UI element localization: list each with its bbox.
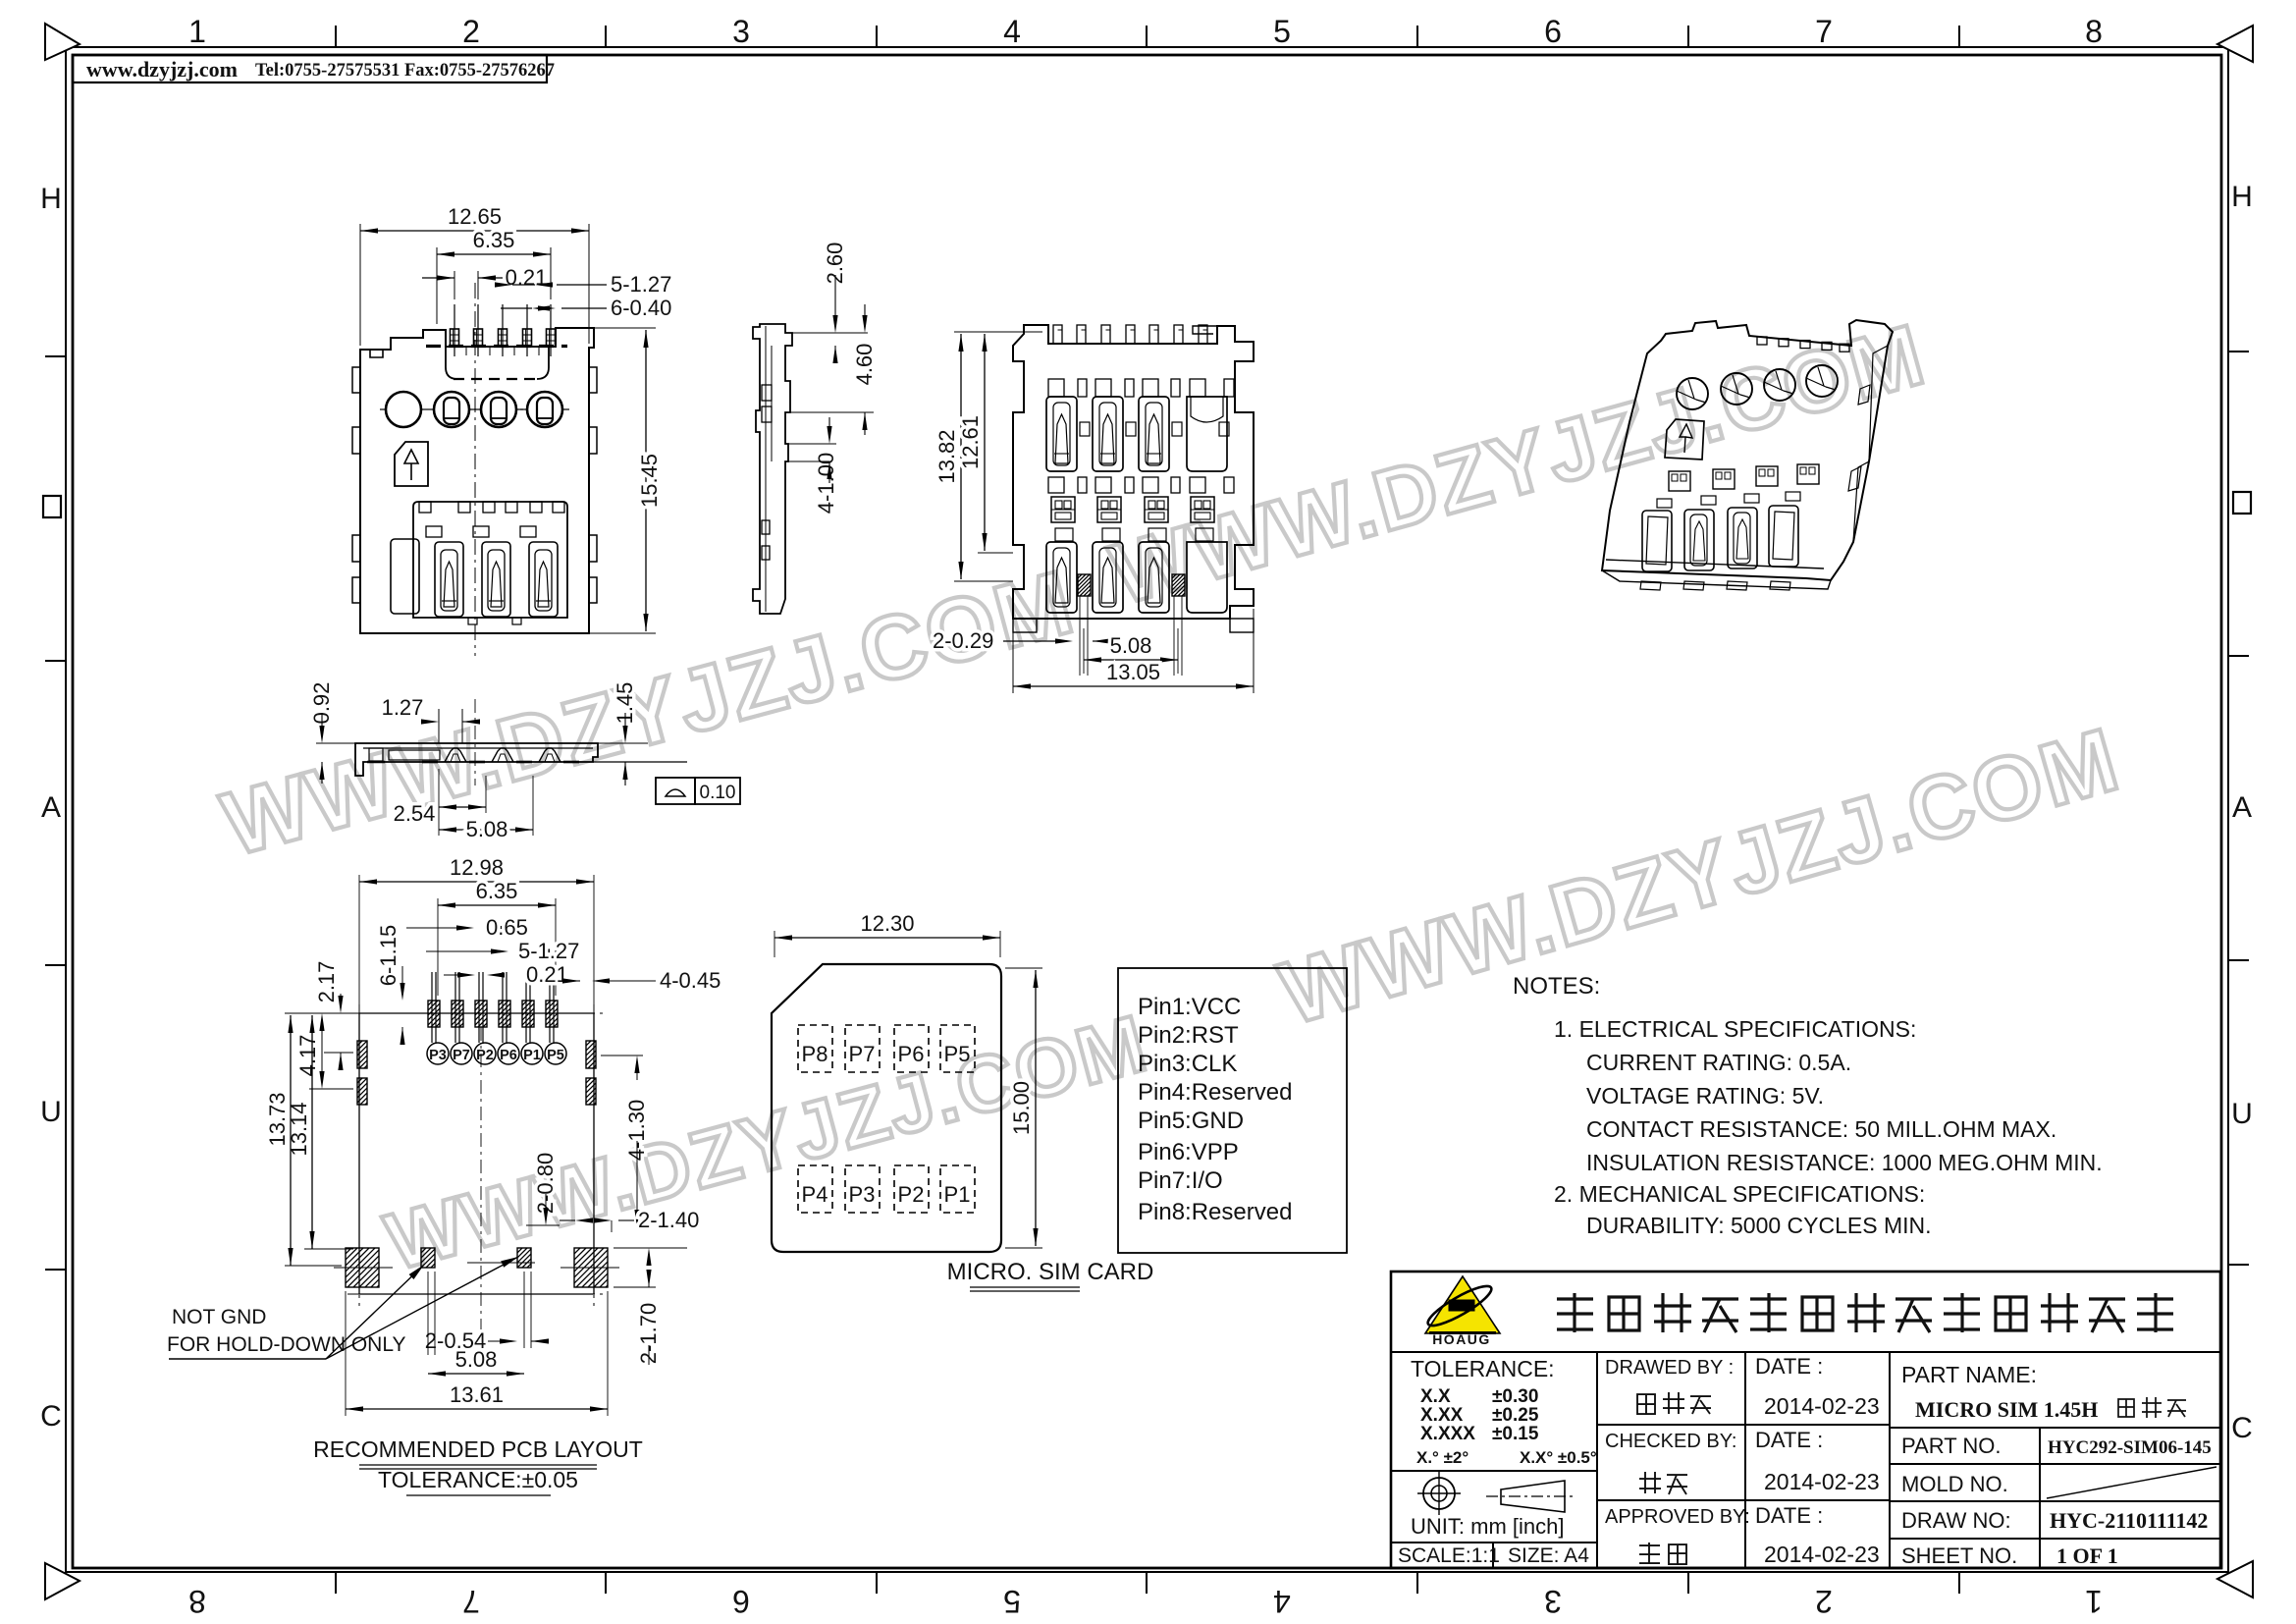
svg-text:2014-02-23: 2014-02-23 (1764, 1393, 1880, 1419)
svg-text:12.30: 12.30 (860, 911, 914, 936)
svg-text:INSULATION RESISTANCE: 1000: INSULATION RESISTANCE: 1000 MEG.OHM MIN. (1586, 1150, 2103, 1175)
svg-text:2. MECHANICAL SPECIFICATIONS: 2. MECHANICAL SPECIFICATIONS: (1554, 1181, 1925, 1207)
svg-text:3: 3 (1544, 1584, 1562, 1619)
svg-text:6.35: 6.35 (473, 228, 515, 252)
svg-text:4.60: 4.60 (852, 344, 877, 386)
svg-text:P1: P1 (944, 1182, 971, 1207)
svg-text:0.65: 0.65 (486, 915, 528, 940)
svg-text:4.17: 4.17 (295, 1035, 320, 1077)
svg-text:Pin7:I/O: Pin7:I/O (1138, 1167, 1223, 1194)
svg-text:X.X° ±0.5°: X.X° ±0.5° (1520, 1448, 1597, 1467)
svg-text:15.00: 15.00 (1009, 1081, 1034, 1135)
svg-text:Pin2:RST: Pin2:RST (1138, 1022, 1239, 1049)
svg-text:Tel:0755-27575531 Fax:0755-27: Tel:0755-27575531 Fax:0755-27576267 (255, 61, 555, 81)
svg-text:H: H (40, 183, 62, 215)
svg-text:4: 4 (1273, 1584, 1291, 1619)
svg-text:Pin5:GND: Pin5:GND (1138, 1108, 1244, 1134)
svg-text:U: U (40, 1096, 62, 1128)
svg-text:HYC-2110111142: HYC-2110111142 (2050, 1508, 2208, 1533)
svg-text:P3: P3 (429, 1048, 447, 1063)
svg-text:2.17: 2.17 (314, 961, 339, 1003)
svg-text:PART NAME:: PART NAME: (1901, 1362, 2037, 1387)
svg-text:Pin4:Reserved: Pin4:Reserved (1138, 1079, 1292, 1106)
svg-text:P1: P1 (523, 1048, 541, 1063)
svg-text:6: 6 (732, 1584, 750, 1619)
svg-text:TOLERANCE:±0.05: TOLERANCE:±0.05 (378, 1467, 578, 1492)
svg-text:CURRENT RATING: 0.5A.: CURRENT RATING: 0.5A. (1586, 1050, 1851, 1075)
svg-text:1: 1 (188, 14, 206, 49)
svg-text:12.61: 12.61 (958, 415, 983, 469)
svg-text:0.21: 0.21 (526, 962, 568, 987)
svg-text:13.82: 13.82 (934, 429, 959, 483)
svg-text:DURABILITY: 5000 CYCLES MIN: DURABILITY: 5000 CYCLES MIN. (1586, 1213, 1932, 1238)
svg-text:P8: P8 (802, 1042, 828, 1066)
svg-text:P5: P5 (547, 1048, 564, 1063)
svg-text:6-0.40: 6-0.40 (611, 296, 671, 320)
svg-text:X.XXX: X.XXX (1420, 1424, 1475, 1444)
svg-text:SIZE: A4: SIZE: A4 (1508, 1544, 1589, 1567)
svg-text:CHECKED BY:: CHECKED BY: (1605, 1431, 1736, 1452)
svg-text:P5: P5 (944, 1042, 971, 1066)
svg-text:6-1.15: 6-1.15 (376, 925, 400, 986)
svg-text:DATE :: DATE : (1755, 1503, 1823, 1528)
svg-text:3: 3 (732, 14, 750, 49)
svg-text:P3: P3 (849, 1182, 876, 1207)
svg-text:Pin6:VPP: Pin6:VPP (1138, 1139, 1239, 1165)
svg-text:SHEET NO.: SHEET NO. (1901, 1543, 2017, 1568)
svg-text:Pin1:VCC: Pin1:VCC (1138, 994, 1241, 1020)
svg-text:5-1.27: 5-1.27 (611, 272, 671, 297)
svg-text:DATE :: DATE : (1755, 1354, 1823, 1379)
svg-text:Pin3:CLK: Pin3:CLK (1138, 1051, 1237, 1077)
svg-text:HOAUG: HOAUG (1432, 1331, 1491, 1347)
svg-text:APPROVED BY:: APPROVED BY: (1605, 1506, 1750, 1528)
svg-text:X.X: X.X (1420, 1386, 1451, 1407)
svg-text:P6: P6 (500, 1048, 517, 1063)
svg-text:MICRO SIM 1.45H: MICRO SIM 1.45H (1915, 1397, 2098, 1422)
svg-text:5.08: 5.08 (455, 1347, 498, 1372)
svg-text:MOLD NO.: MOLD NO. (1901, 1472, 2008, 1496)
svg-text:15.45: 15.45 (637, 454, 662, 508)
svg-text:Pin8:Reserved: Pin8:Reserved (1138, 1199, 1292, 1225)
svg-text:12.98: 12.98 (450, 855, 504, 880)
svg-text:www.dzyjzj.com: www.dzyjzj.com (86, 57, 238, 81)
svg-text:13.05: 13.05 (1106, 660, 1160, 684)
svg-text:1 OF 1: 1 OF 1 (2056, 1543, 2118, 1568)
svg-text:VOLTAGE RATING: 5V.: VOLTAGE RATING: 5V. (1586, 1083, 1824, 1109)
svg-text:5.08: 5.08 (466, 817, 508, 841)
svg-text:HYC292-SIM06-145: HYC292-SIM06-145 (2048, 1437, 2212, 1458)
svg-text:1: 1 (2085, 1584, 2103, 1619)
svg-text:X.° ±2°: X.° ±2° (1416, 1448, 1468, 1467)
svg-text:7: 7 (1815, 14, 1833, 49)
svg-text:±0.15: ±0.15 (1492, 1424, 1539, 1444)
svg-text:C: C (2231, 1412, 2253, 1444)
svg-text:H: H (2231, 181, 2253, 213)
svg-text:MICRO. SIM CARD: MICRO. SIM CARD (947, 1259, 1154, 1285)
svg-text:8: 8 (2085, 14, 2103, 49)
svg-text:0.21: 0.21 (506, 265, 548, 290)
svg-text:A: A (41, 791, 61, 824)
svg-text:5-1.27: 5-1.27 (518, 939, 579, 963)
svg-text:6: 6 (1544, 14, 1562, 49)
svg-text:±0.30: ±0.30 (1492, 1386, 1538, 1407)
svg-text:C: C (40, 1400, 62, 1433)
svg-text:SCALE:1:1: SCALE:1:1 (1398, 1544, 1500, 1567)
svg-text:0.10: 0.10 (700, 783, 736, 803)
svg-text:P7: P7 (849, 1042, 876, 1066)
svg-text:±0.25: ±0.25 (1492, 1405, 1539, 1426)
svg-text:12.65: 12.65 (448, 204, 502, 229)
svg-text:PART NO.: PART NO. (1901, 1434, 2001, 1458)
svg-text:TOLERANCE:: TOLERANCE: (1411, 1356, 1555, 1381)
svg-text:RECOMMENDED PCB LAYOUT: RECOMMENDED PCB LAYOUT (313, 1436, 643, 1462)
svg-text:NOT GND: NOT GND (172, 1306, 266, 1328)
svg-text:P4: P4 (802, 1182, 828, 1207)
svg-text:4-0.45: 4-0.45 (660, 968, 721, 993)
svg-text:5.08: 5.08 (1110, 633, 1152, 658)
svg-text:NOTES:: NOTES: (1513, 973, 1600, 1000)
svg-text:P2: P2 (898, 1182, 925, 1207)
svg-text:2: 2 (462, 14, 480, 49)
svg-text:DATE :: DATE : (1755, 1428, 1823, 1452)
svg-text:UNIT: mm [inch]: UNIT: mm [inch] (1411, 1514, 1564, 1539)
svg-text:8: 8 (188, 1584, 206, 1619)
svg-text:X.XX: X.XX (1420, 1405, 1464, 1426)
svg-text:DRAWED BY :: DRAWED BY : (1605, 1357, 1734, 1379)
svg-text:2.54: 2.54 (394, 801, 436, 826)
svg-text:2-1.40: 2-1.40 (638, 1208, 699, 1232)
svg-text:5: 5 (1273, 14, 1291, 49)
svg-text:13.73: 13.73 (265, 1092, 290, 1146)
svg-text:P7: P7 (453, 1048, 470, 1063)
svg-text:2-0.29: 2-0.29 (933, 628, 993, 653)
svg-text:1. ELECTRICAL SPECIFICATIONS: 1. ELECTRICAL SPECIFICATIONS: (1554, 1016, 1916, 1042)
svg-text:2014-02-23: 2014-02-23 (1764, 1469, 1880, 1494)
svg-text:7: 7 (462, 1584, 480, 1619)
svg-text:P6: P6 (898, 1042, 925, 1066)
svg-text:CONTACT RESISTANCE: 50 MILL: CONTACT RESISTANCE: 50 MILL.OHM MAX. (1586, 1116, 2056, 1142)
svg-text:2: 2 (1815, 1584, 1833, 1619)
svg-text:FOR HOLD-DOWN ONLY: FOR HOLD-DOWN ONLY (167, 1333, 405, 1356)
svg-text:13.61: 13.61 (450, 1382, 504, 1407)
svg-text:5: 5 (1003, 1584, 1021, 1619)
svg-text:6.35: 6.35 (476, 879, 518, 903)
svg-text:2014-02-23: 2014-02-23 (1764, 1542, 1880, 1567)
svg-text:1.27: 1.27 (382, 695, 424, 720)
svg-text:4: 4 (1003, 14, 1021, 49)
svg-text:A: A (2232, 791, 2252, 824)
svg-text:U: U (2231, 1098, 2253, 1130)
svg-text:DRAW NO:: DRAW NO: (1901, 1508, 2011, 1533)
svg-text:P2: P2 (476, 1048, 494, 1063)
